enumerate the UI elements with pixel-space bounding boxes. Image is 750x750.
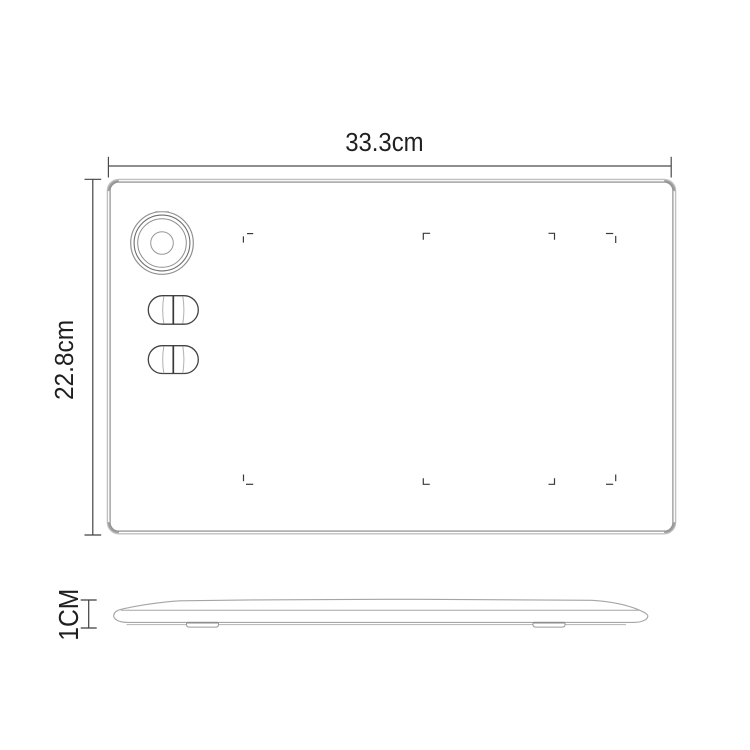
svg-text:33.3cm: 33.3cm: [345, 128, 423, 157]
svg-text:22.8cm: 22.8cm: [50, 320, 79, 400]
svg-text:1CM: 1CM: [53, 589, 85, 641]
